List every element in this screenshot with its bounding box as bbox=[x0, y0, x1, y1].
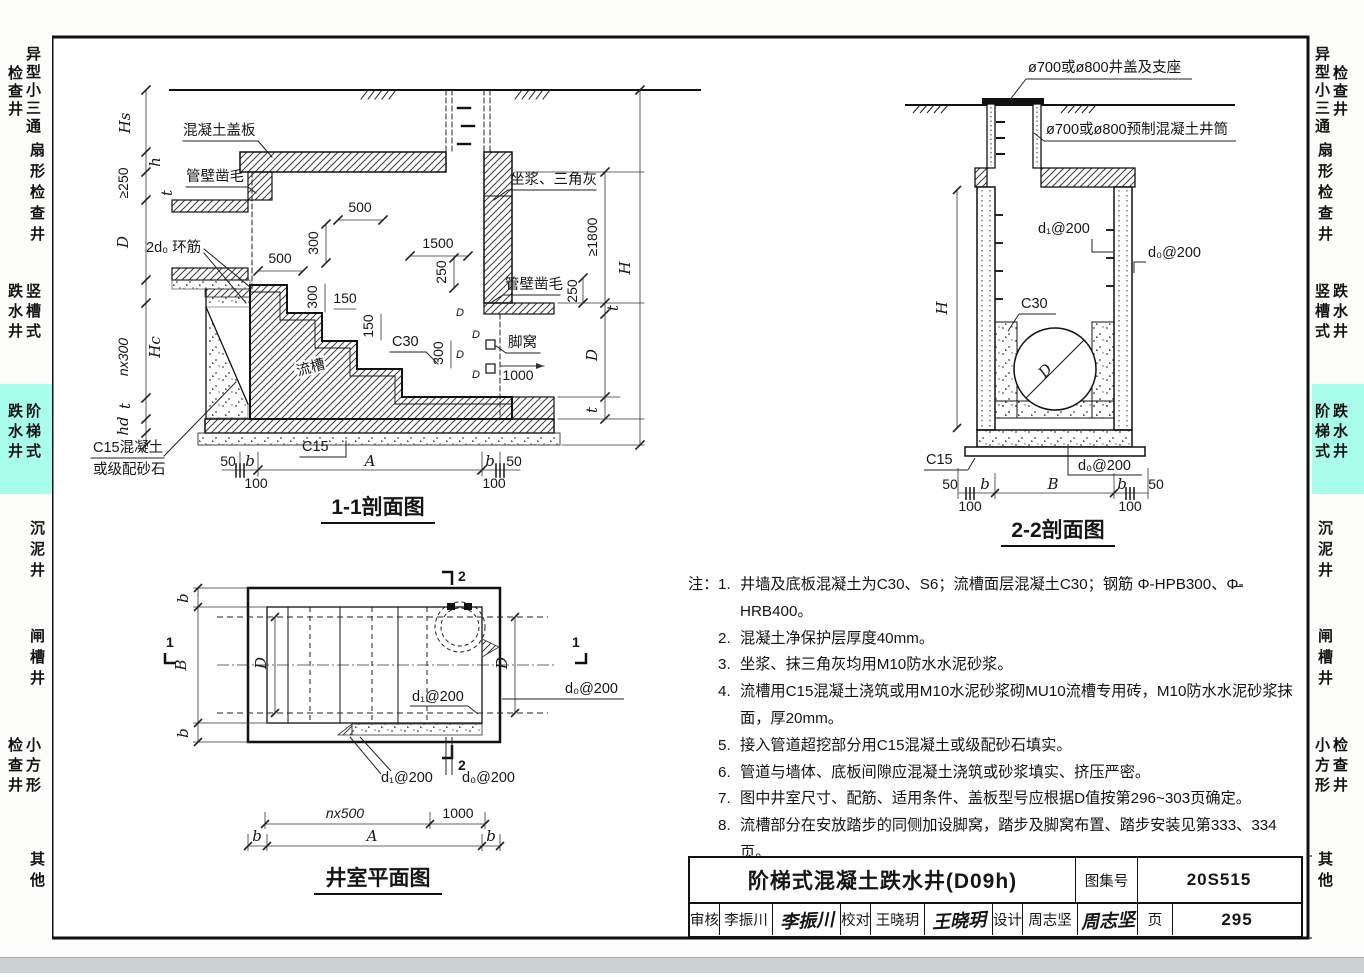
sidebar-item-other[interactable]: 其他 bbox=[1316, 851, 1350, 893]
label-c15: C15 bbox=[926, 452, 953, 468]
svg-text:500: 500 bbox=[268, 250, 292, 266]
svg-text:A: A bbox=[363, 452, 376, 470]
sidebar-item-label: 跌水井 bbox=[1331, 283, 1348, 343]
label-chisel-top: 管壁凿毛 bbox=[186, 168, 244, 185]
sidebar-item-label: 扇形检查井 bbox=[28, 142, 45, 247]
section-2-2-title: 2-2剖面图 bbox=[1011, 518, 1104, 542]
sidebar-item-small-square-well[interactable]: 检查井 小方形 bbox=[6, 737, 109, 797]
label-mortar: 坐浆、三角灰 bbox=[510, 170, 597, 188]
svg-text:50: 50 bbox=[942, 476, 958, 492]
svg-text:b: b bbox=[486, 827, 496, 845]
proof-name: 王晓玥 bbox=[870, 904, 924, 935]
svg-text:nx500: nx500 bbox=[326, 805, 364, 821]
svg-text:Hc: Hc bbox=[146, 336, 164, 359]
sidebar-item-label: 竖槽式 bbox=[24, 283, 41, 343]
svg-text:1000: 1000 bbox=[502, 367, 533, 383]
plan-view-title: 井室平面图 bbox=[326, 866, 431, 890]
label-d1-200-inner: d₁@200 bbox=[412, 689, 464, 705]
sidebar-left: 检查井 异型小三通 扇形检查井 跌水井 竖槽式 跌水井 阶梯式 沉泥井 闸槽井 … bbox=[0, 0, 52, 972]
svg-text:50: 50 bbox=[506, 453, 522, 469]
sidebar-item-label: 跌水井 bbox=[6, 403, 23, 463]
design-name: 周志坚 bbox=[1022, 904, 1077, 935]
proof-signature: 王晓玥 bbox=[924, 904, 992, 935]
label-cover-support: ø700或ø800井盖及支座 bbox=[1028, 59, 1181, 76]
sidebar-item-special-tee-well[interactable]: 检查井 异型小三通 bbox=[6, 46, 143, 136]
svg-text:100: 100 bbox=[482, 475, 506, 491]
label-ring-rebar: 2d₀ 环筋 bbox=[146, 239, 201, 256]
sidebar-item-vertical-slot-drop-well[interactable]: 竖槽式 跌水井 bbox=[1313, 283, 1364, 343]
page-edge-shadow bbox=[0, 957, 1364, 973]
design-signature: 周志坚 bbox=[1077, 904, 1137, 935]
note-item: 注： 1. 井墙及底板混凝土为C30、S6；流槽面层混凝土C30；钢筋 Φ-HP… bbox=[688, 572, 1306, 626]
sidebar-item-label: 闸槽井 bbox=[1316, 628, 1333, 691]
sidebar-item-label: 检查井 bbox=[6, 46, 23, 136]
label-cover-slab: 混凝土盖板 bbox=[183, 121, 256, 139]
svg-text:b: b bbox=[485, 452, 495, 470]
svg-text:b: b bbox=[174, 593, 192, 603]
svg-text:D: D bbox=[472, 329, 480, 341]
svg-text:D: D bbox=[252, 657, 270, 670]
svg-text:1: 1 bbox=[572, 634, 580, 650]
sidebar-item-label: 检查井 bbox=[1331, 737, 1348, 797]
svg-text:1: 1 bbox=[166, 634, 174, 650]
sidebar-item-sediment-well[interactable]: 沉泥井 bbox=[28, 520, 79, 583]
sidebar-item-label: 沉泥井 bbox=[1316, 520, 1333, 583]
note-item: 7. 图中井室尺寸、配筋、适用条件、盖板型号应根据D值按第296~303页确定。 bbox=[688, 786, 1306, 813]
sidebar-right: 异型小三通 检查井 扇形检查井 竖槽式 跌水井 阶梯式 跌水井 沉泥井 闸槽井 … bbox=[1312, 0, 1364, 972]
sidebar-item-label: 其他 bbox=[1316, 851, 1333, 893]
label-c15-fill-2: 或级配砂石 bbox=[93, 461, 166, 478]
sidebar-item-label: 小方形 bbox=[1313, 737, 1330, 797]
note-item: 6. 管道与墙体、底板间隙应混凝土浇筑或砂浆填实、挤压严密。 bbox=[688, 760, 1306, 787]
label-d0-200-right: d₀@200 bbox=[565, 681, 618, 697]
svg-text:t: t bbox=[116, 402, 134, 409]
svg-text:100: 100 bbox=[244, 475, 268, 491]
svg-text:H: H bbox=[616, 261, 634, 276]
sidebar-item-label: 跌水井 bbox=[1331, 403, 1348, 463]
svg-text:D: D bbox=[472, 369, 480, 381]
sidebar-item-label: 竖槽式 bbox=[1313, 283, 1330, 343]
svg-text:b: b bbox=[980, 475, 990, 493]
label-chisel-right: 管壁凿毛 bbox=[505, 276, 563, 293]
atlas-number-value: 20S515 bbox=[1137, 858, 1300, 902]
atlas-number-label: 图集号 bbox=[1075, 858, 1137, 902]
note-item: 4. 流槽用C15混凝土浇筑或用M10水泥砂浆砌MU10流槽专用砖，M10防水水… bbox=[688, 679, 1306, 733]
sidebar-item-label: 沉泥井 bbox=[28, 520, 45, 583]
label-precast-tube: ø700或ø800预制混凝土井筒 bbox=[1046, 121, 1228, 138]
svg-text:100: 100 bbox=[1118, 498, 1142, 514]
svg-text:nx300: nx300 bbox=[115, 338, 131, 376]
svg-text:H: H bbox=[933, 301, 951, 316]
proof-label: 校对 bbox=[840, 904, 870, 935]
svg-text:D: D bbox=[114, 236, 132, 249]
sidebar-item-special-tee-well[interactable]: 异型小三通 检查井 bbox=[1313, 46, 1364, 136]
svg-text:b: b bbox=[245, 452, 255, 470]
svg-text:D: D bbox=[456, 307, 464, 319]
svg-text:B: B bbox=[172, 659, 190, 671]
sidebar-item-sediment-well[interactable]: 沉泥井 bbox=[1316, 520, 1364, 583]
review-name: 李振川 bbox=[719, 904, 772, 935]
sidebar-item-label: 其他 bbox=[28, 851, 45, 893]
section-1-1-title: 1-1剖面图 bbox=[331, 495, 424, 519]
sidebar-item-label: 小方形 bbox=[24, 737, 41, 797]
sidebar-item-other[interactable]: 其他 bbox=[28, 851, 62, 893]
note-item: 5. 接入管道超挖部分用C15混凝土或级配砂石填实。 bbox=[688, 733, 1306, 760]
sidebar-item-gate-slot-well[interactable]: 闸槽井 bbox=[1316, 628, 1364, 691]
svg-text:250: 250 bbox=[433, 260, 449, 284]
svg-text:50: 50 bbox=[1148, 476, 1164, 492]
notes-block: 注： 1. 井墙及底板混凝土为C30、S6；流槽面层混凝土C30；钢筋 Φ-HP… bbox=[688, 572, 1306, 894]
sidebar-item-label: 闸槽井 bbox=[28, 628, 45, 691]
svg-text:300: 300 bbox=[304, 285, 320, 309]
design-label: 设计 bbox=[992, 904, 1022, 935]
label-c30: C30 bbox=[1021, 296, 1048, 312]
svg-text:150: 150 bbox=[360, 314, 376, 338]
sidebar-item-label: 检查井 bbox=[1331, 46, 1348, 136]
sidebar-item-vertical-slot-drop-well[interactable]: 跌水井 竖槽式 bbox=[6, 283, 109, 343]
title-block: 阶梯式混凝土跌水井(D09h) 图集号 20S515 审核 李振川 李振川 校对… bbox=[688, 856, 1303, 938]
sidebar-item-stepped-drop-well[interactable]: 阶梯式 跌水井 bbox=[1313, 403, 1364, 463]
sidebar-item-label: 异型小三通 bbox=[1313, 46, 1330, 136]
sidebar-item-gate-slot-well[interactable]: 闸槽井 bbox=[28, 628, 79, 691]
sidebar-item-label: 异型小三通 bbox=[24, 46, 41, 136]
review-label: 审核 bbox=[690, 904, 719, 935]
svg-text:1000: 1000 bbox=[442, 805, 473, 821]
label-d0-200-bottom: d₀@200 bbox=[462, 770, 515, 786]
svg-text:100: 100 bbox=[958, 498, 982, 514]
svg-text:B: B bbox=[1046, 475, 1058, 493]
sidebar-item-label: 跌水井 bbox=[6, 283, 23, 343]
svg-text:≥250: ≥250 bbox=[115, 167, 131, 198]
svg-text:150: 150 bbox=[333, 290, 357, 306]
svg-text:b: b bbox=[174, 728, 192, 738]
label-c30: C30 bbox=[392, 334, 419, 350]
svg-text:h: h bbox=[146, 157, 164, 167]
svg-text:t: t bbox=[158, 189, 176, 196]
sidebar-item-label: 扇形检查井 bbox=[1316, 142, 1333, 247]
svg-text:b: b bbox=[1117, 475, 1127, 493]
page-label: 页 bbox=[1137, 904, 1172, 935]
svg-text:D: D bbox=[456, 349, 464, 361]
sidebar-item-fan-inspection-well[interactable]: 扇形检查井 bbox=[1316, 142, 1364, 247]
sidebar-item-label: 阶梯式 bbox=[24, 403, 41, 463]
sidebar-item-stepped-drop-well[interactable]: 跌水井 阶梯式 bbox=[6, 403, 109, 463]
label-d1-200-bottom: d₁@200 bbox=[381, 770, 433, 786]
sidebar-item-label: 检查井 bbox=[6, 737, 23, 797]
label-c15-base: C15 bbox=[302, 439, 329, 455]
svg-text:t: t bbox=[583, 406, 601, 413]
svg-text:t: t bbox=[604, 304, 622, 311]
label-d0-200: d₀@200 bbox=[1148, 245, 1201, 261]
svg-text:250: 250 bbox=[564, 279, 580, 303]
svg-text:50: 50 bbox=[220, 453, 236, 469]
page-number: 295 bbox=[1172, 904, 1301, 935]
svg-text:300: 300 bbox=[305, 231, 321, 255]
svg-text:500: 500 bbox=[348, 199, 372, 215]
label-d1-200: d₁@200 bbox=[1038, 221, 1090, 237]
svg-text:300: 300 bbox=[430, 341, 446, 365]
svg-text:≥1800: ≥1800 bbox=[584, 217, 600, 256]
svg-text:1500: 1500 bbox=[422, 235, 453, 251]
notes-heading: 注： bbox=[688, 572, 718, 599]
svg-text:A: A bbox=[365, 827, 378, 845]
sidebar-item-small-square-well[interactable]: 小方形 检查井 bbox=[1313, 737, 1364, 797]
svg-text:hd: hd bbox=[114, 416, 132, 435]
svg-text:D: D bbox=[493, 657, 511, 670]
drawing-title: 阶梯式混凝土跌水井(D09h) bbox=[690, 858, 1075, 902]
svg-text:D: D bbox=[583, 349, 601, 362]
label-foothole: 脚窝 bbox=[508, 333, 537, 351]
note-item: 3. 坐浆、抹三角灰均用M10防水水泥砂浆。 bbox=[688, 652, 1306, 679]
label-d0-200-bottom: d₀@200 bbox=[1078, 458, 1131, 474]
note-item: 2. 混凝土净保护层厚度40mm。 bbox=[688, 626, 1306, 653]
sidebar-item-label: 阶梯式 bbox=[1313, 403, 1330, 463]
review-signature: 李振川 bbox=[772, 904, 840, 935]
svg-text:b: b bbox=[252, 827, 262, 845]
svg-text:2: 2 bbox=[458, 568, 466, 584]
sidebar-item-fan-inspection-well[interactable]: 扇形检查井 bbox=[28, 142, 113, 247]
